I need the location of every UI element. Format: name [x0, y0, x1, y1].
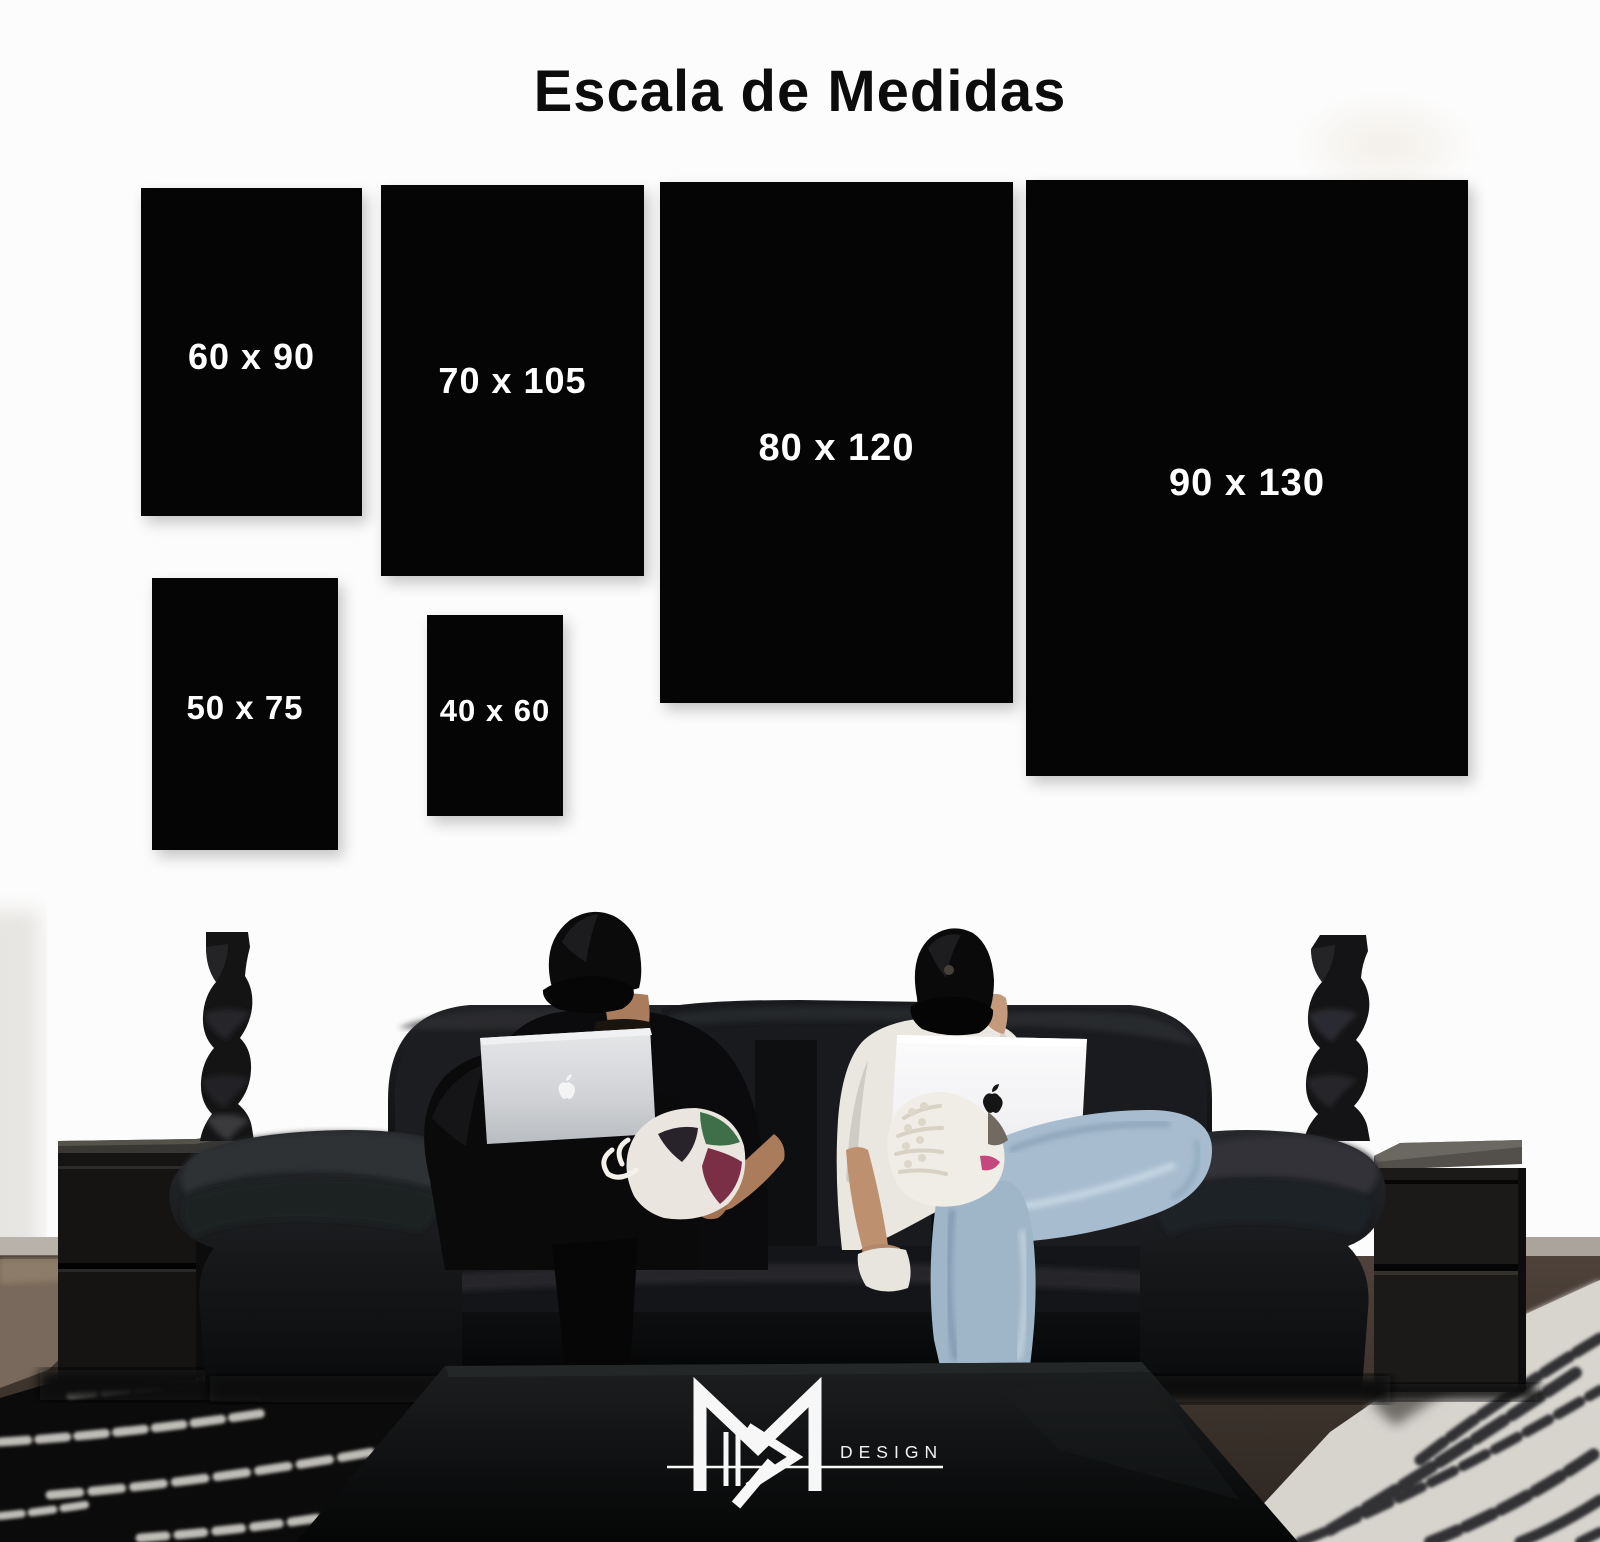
svg-text:DESIGN: DESIGN — [840, 1442, 943, 1462]
